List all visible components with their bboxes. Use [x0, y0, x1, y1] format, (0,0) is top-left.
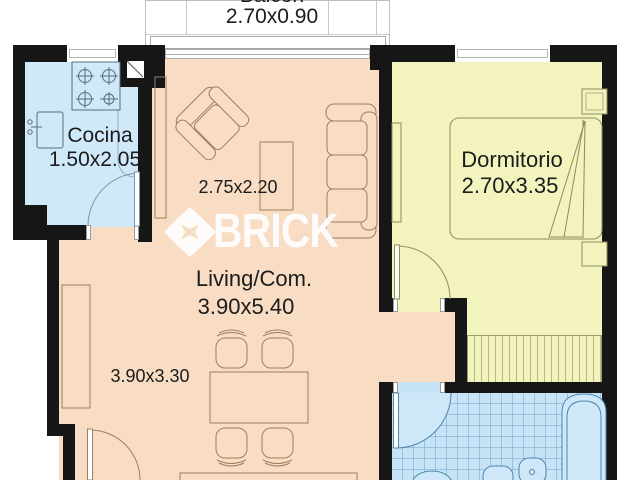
- bathroom-door-leaf: [394, 393, 399, 448]
- armchair: [171, 82, 252, 163]
- living-dimensions-label: 3.90x5.40: [198, 294, 295, 320]
- bathtub: [562, 394, 606, 480]
- kitchen-sink: [28, 112, 63, 148]
- sofa: [326, 104, 377, 238]
- living-lower-area-label: 3.90x3.30: [110, 366, 189, 387]
- entry-door-arc: [90, 430, 140, 480]
- bedroom-door-leaf: [395, 245, 400, 299]
- kitchen-dimensions-label: 1.50x2.05: [49, 148, 141, 172]
- entry-door-leaf: [88, 429, 93, 480]
- stove: [72, 62, 120, 110]
- dining-table: [210, 372, 308, 423]
- shelf-unit: [62, 285, 90, 408]
- sideboard: [180, 473, 357, 480]
- bedroom-name-label: Dormitorio: [461, 147, 562, 173]
- side-table: [260, 142, 293, 210]
- kitchen-name-label: Cocina: [67, 124, 132, 148]
- bedroom-dimensions-label: 2.70x3.35: [462, 173, 559, 199]
- tv-unit: [155, 77, 166, 218]
- toilet: [483, 466, 513, 480]
- bathroom-door-swing: [396, 393, 451, 448]
- bathroom-sink: [412, 471, 452, 480]
- living-upper-area-label: 2.75x2.20: [198, 177, 277, 198]
- balcony-dimensions-label: 2.70x0.90: [226, 5, 318, 29]
- kitchen-door-leaf: [135, 172, 140, 226]
- kitchen-door-arc: [88, 173, 138, 226]
- bidet: [519, 458, 546, 480]
- wardrobe: [392, 123, 401, 222]
- bedroom-door-arc: [397, 246, 450, 299]
- furniture-layer: [0, 0, 640, 480]
- living-name-label: Living/Com.: [196, 266, 312, 292]
- floor-plan: BRICK Balcón 2.70x0.90 Cocina 1.50x2.05 …: [0, 0, 640, 480]
